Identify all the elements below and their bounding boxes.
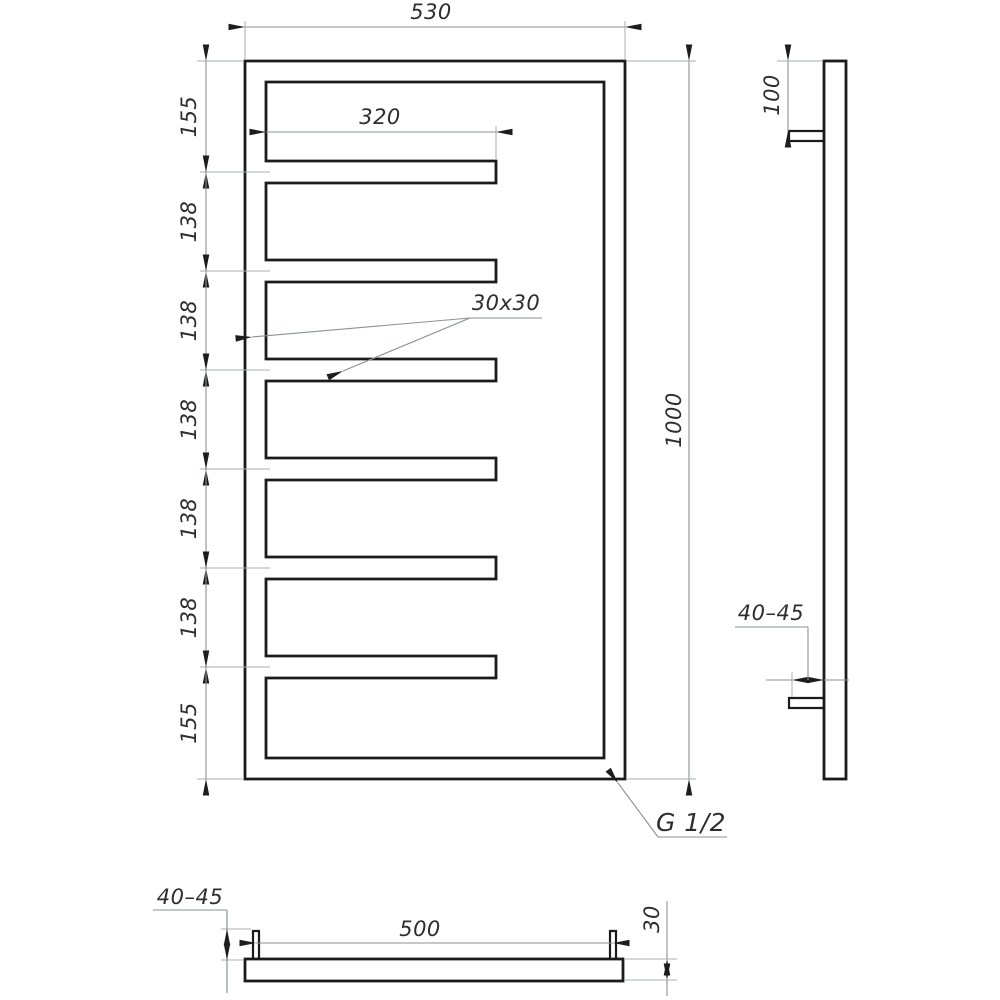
side-bracket-top [789, 131, 824, 141]
height-dimension-label: 1000 [662, 392, 686, 447]
wall-gap-side-label: 40–45 [738, 601, 804, 625]
segment-label-6: 138 [177, 597, 201, 639]
segment-label-7: 155 [177, 702, 201, 744]
top-offset-dimension: 100 [760, 61, 823, 131]
segment-label-4: 138 [177, 399, 201, 441]
top-offset-label: 100 [760, 74, 784, 116]
width-dimension: 530 [245, 0, 625, 60]
bottom-bracket-right [610, 931, 616, 959]
wall-gap-bottom-label: 40–45 [157, 885, 223, 909]
bottom-view: 500 40–45 30 [153, 885, 677, 996]
bottom-tube [245, 959, 623, 981]
segment-label-5: 138 [177, 498, 201, 540]
wall-gap-dimension-bottom: 40–45 [153, 885, 251, 993]
depth-dimension-label: 30 [640, 905, 664, 933]
bottom-bracket-left [253, 931, 259, 959]
height-dimension: 1000 [626, 61, 696, 779]
wall-gap-dimension-side: 40–45 [735, 601, 849, 697]
technical-drawing-sheet: 530 155 138 138 138 138 138 155 [0, 0, 1000, 1000]
outer-frame [245, 61, 625, 779]
bar-length-dimension: 320 [266, 105, 496, 159]
side-view: 100 40–45 [735, 61, 849, 779]
bracket-spacing-label: 500 [399, 917, 441, 941]
bracket-spacing-dimension: 500 [256, 917, 613, 943]
thread-callout: G 1/2 [618, 783, 727, 837]
towel-rail-technical-drawing: 530 155 138 138 138 138 138 155 [0, 0, 1000, 1000]
depth-dimension: 30 [624, 901, 677, 996]
side-bracket-bottom [789, 698, 824, 708]
side-tube [824, 61, 846, 779]
segment-label-1: 155 [177, 96, 201, 138]
inner-contour [266, 82, 604, 758]
segment-label-2: 138 [177, 201, 201, 243]
segment-label-3: 138 [177, 300, 201, 342]
front-view: 530 155 138 138 138 138 138 155 [177, 0, 727, 837]
segment-dimension-chain: 155 138 138 138 138 138 155 [177, 61, 270, 779]
thread-label: G 1/2 [656, 808, 726, 837]
profile-label: 30x30 [472, 291, 540, 315]
width-dimension-label: 530 [410, 0, 452, 24]
bar-length-label: 320 [359, 105, 401, 129]
